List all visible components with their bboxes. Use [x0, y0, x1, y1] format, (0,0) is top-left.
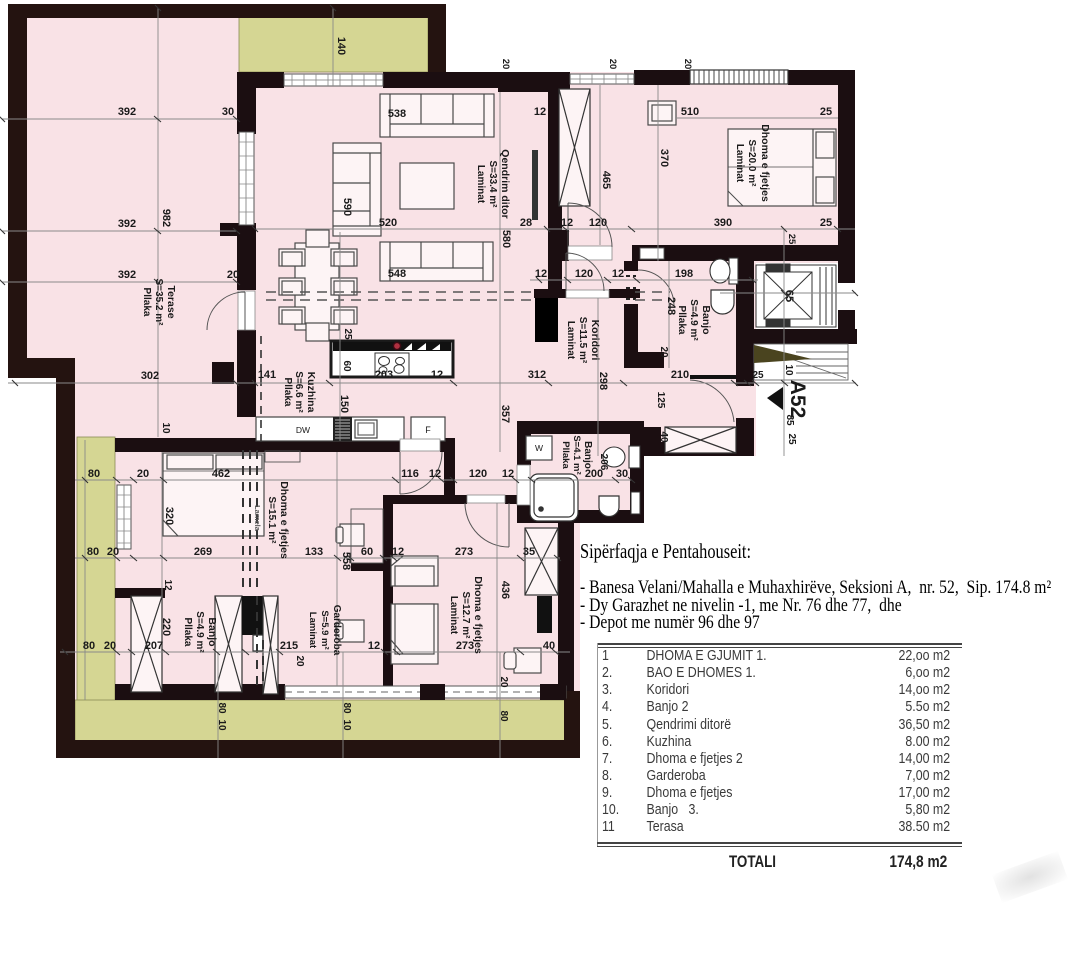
svg-text:S=35.2 m²: S=35.2 m² — [153, 279, 164, 327]
svg-text:116: 116 — [401, 468, 419, 480]
svg-text:215: 215 — [280, 640, 298, 652]
svg-text:392: 392 — [118, 218, 136, 230]
svg-text:Kuzhina: Kuzhina — [305, 372, 317, 413]
svg-text:140: 140 — [335, 37, 347, 55]
svg-text:273: 273 — [455, 546, 473, 558]
svg-text:S=6.6 m²: S=6.6 m² — [293, 371, 304, 413]
svg-text:Banjo: Banjo — [206, 617, 218, 646]
svg-text:20: 20 — [227, 269, 239, 281]
svg-text:390: 390 — [714, 217, 732, 229]
svg-text:30: 30 — [616, 468, 628, 480]
svg-text:25: 25 — [820, 106, 832, 118]
svg-text:20: 20 — [607, 59, 618, 70]
svg-text:273: 273 — [456, 640, 474, 652]
svg-text:220: 220 — [160, 618, 172, 636]
svg-text:Dhoma e fjetjes: Dhoma e fjetjes — [278, 481, 290, 559]
svg-text:312: 312 — [528, 369, 546, 381]
svg-text:269: 269 — [194, 546, 212, 558]
svg-text:25: 25 — [786, 433, 797, 445]
svg-text:10: 10 — [783, 364, 794, 376]
svg-text:S=5.9 m²: S=5.9 m² — [319, 610, 330, 649]
svg-text:210: 210 — [671, 369, 689, 381]
svg-text:12: 12 — [429, 468, 441, 480]
svg-text:F: F — [425, 425, 431, 435]
svg-text:10: 10 — [160, 422, 171, 434]
svg-text:Laminat: Laminat — [475, 165, 486, 204]
svg-text:40: 40 — [543, 640, 555, 652]
svg-text:298: 298 — [597, 372, 609, 390]
svg-text:392: 392 — [118, 106, 136, 118]
svg-text:20: 20 — [137, 468, 149, 480]
svg-text:30: 30 — [222, 106, 234, 118]
svg-text:Laminat: Laminat — [734, 144, 745, 183]
svg-text:12: 12 — [502, 468, 514, 480]
svg-text:25: 25 — [342, 328, 353, 340]
svg-text:Qendrim ditor: Qendrim ditor — [499, 149, 511, 218]
svg-text:Lamela: Lamela — [253, 505, 262, 532]
svg-text:Pllaka: Pllaka — [560, 441, 571, 469]
svg-text:Laminat: Laminat — [307, 612, 318, 649]
svg-text:12: 12 — [368, 640, 380, 652]
svg-text:S=4.9 m²: S=4.9 m² — [194, 611, 205, 653]
svg-text:80: 80 — [83, 640, 95, 652]
svg-text:248: 248 — [665, 297, 677, 315]
svg-text:S=15.1 m²: S=15.1 m² — [266, 497, 277, 545]
svg-text:Dhoma e fjetjes: Dhoma e fjetjes — [759, 124, 771, 202]
svg-text:80: 80 — [88, 468, 100, 480]
svg-text:10: 10 — [216, 719, 227, 731]
svg-text:198: 198 — [675, 268, 693, 280]
svg-text:580: 580 — [500, 230, 512, 248]
svg-text:302: 302 — [141, 370, 159, 382]
svg-text:60: 60 — [341, 360, 352, 372]
svg-text:85: 85 — [784, 414, 795, 426]
svg-text:125: 125 — [655, 392, 666, 409]
svg-text:A52: A52 — [786, 380, 809, 419]
svg-text:S=20.0 m²: S=20.0 m² — [746, 140, 757, 188]
svg-text:982: 982 — [160, 209, 172, 227]
svg-text:Pllaka: Pllaka — [182, 618, 193, 647]
svg-text:80: 80 — [87, 546, 99, 558]
svg-text:12: 12 — [431, 369, 443, 381]
svg-text:S=11.5 m²: S=11.5 m² — [577, 317, 588, 364]
svg-text:Pllaka: Pllaka — [676, 306, 687, 335]
svg-text:S=4.9 m²: S=4.9 m² — [688, 299, 699, 341]
svg-text:Terase: Terase — [165, 285, 177, 318]
svg-text:Pllaka: Pllaka — [282, 378, 293, 407]
svg-text:12: 12 — [535, 268, 547, 280]
svg-text:DW: DW — [296, 425, 310, 435]
svg-text:120: 120 — [575, 268, 593, 280]
svg-text:510: 510 — [681, 106, 699, 118]
svg-text:465: 465 — [600, 171, 612, 189]
svg-text:80: 80 — [216, 702, 227, 714]
svg-text:65: 65 — [783, 290, 795, 302]
svg-text:20: 20 — [104, 640, 116, 652]
svg-text:S=4.1 m²: S=4.1 m² — [571, 435, 582, 474]
svg-text:Laminat: Laminat — [565, 321, 576, 360]
svg-text:80: 80 — [498, 710, 509, 722]
svg-text:25: 25 — [820, 217, 832, 229]
svg-text:548: 548 — [388, 268, 406, 280]
svg-text:370: 370 — [658, 149, 670, 167]
svg-text:12: 12 — [534, 106, 546, 118]
svg-text:25: 25 — [752, 370, 764, 381]
svg-text:12: 12 — [162, 579, 173, 591]
svg-text:120: 120 — [469, 468, 487, 480]
svg-text:35: 35 — [523, 546, 535, 558]
svg-text:20: 20 — [294, 655, 305, 667]
svg-text:20: 20 — [682, 59, 693, 70]
svg-text:10: 10 — [341, 719, 352, 731]
svg-text:80: 80 — [341, 702, 352, 714]
svg-text:20: 20 — [107, 546, 119, 558]
svg-text:Banjo: Banjo — [582, 441, 593, 469]
svg-text:520: 520 — [379, 217, 397, 229]
svg-text:60: 60 — [361, 546, 373, 558]
svg-text:Pllaka: Pllaka — [141, 288, 152, 317]
svg-text:120: 120 — [589, 217, 607, 229]
svg-text:28: 28 — [520, 217, 532, 229]
svg-text:558: 558 — [340, 552, 352, 570]
svg-text:462: 462 — [212, 468, 230, 480]
svg-text:206: 206 — [598, 454, 609, 471]
svg-text:392: 392 — [118, 269, 136, 281]
svg-text:Laminat: Laminat — [448, 596, 459, 635]
svg-text:436: 436 — [499, 581, 511, 599]
svg-text:Garderoba: Garderoba — [331, 605, 342, 656]
svg-text:S=12.7 m²: S=12.7 m² — [460, 592, 471, 640]
svg-text:12: 12 — [561, 217, 573, 229]
svg-text:203: 203 — [375, 369, 393, 381]
svg-text:12: 12 — [392, 546, 404, 558]
svg-text:Koridori: Koridori — [589, 320, 601, 361]
svg-text:150: 150 — [338, 395, 350, 413]
svg-text:590: 590 — [341, 198, 353, 216]
svg-text:357: 357 — [499, 405, 511, 423]
svg-text:S=33.4 m²: S=33.4 m² — [487, 161, 498, 209]
svg-text:20: 20 — [498, 676, 509, 688]
svg-text:25: 25 — [786, 234, 797, 245]
svg-text:133: 133 — [305, 546, 323, 558]
svg-text:12: 12 — [612, 268, 624, 280]
svg-text:320: 320 — [163, 507, 175, 525]
svg-text:20: 20 — [658, 346, 669, 358]
svg-text:207: 207 — [145, 640, 163, 652]
svg-text:20: 20 — [500, 59, 511, 70]
svg-text:141: 141 — [258, 369, 276, 381]
svg-text:40: 40 — [658, 431, 669, 443]
svg-text:Banjo: Banjo — [700, 305, 712, 334]
svg-text:538: 538 — [388, 108, 406, 120]
svg-text:W: W — [535, 443, 543, 453]
